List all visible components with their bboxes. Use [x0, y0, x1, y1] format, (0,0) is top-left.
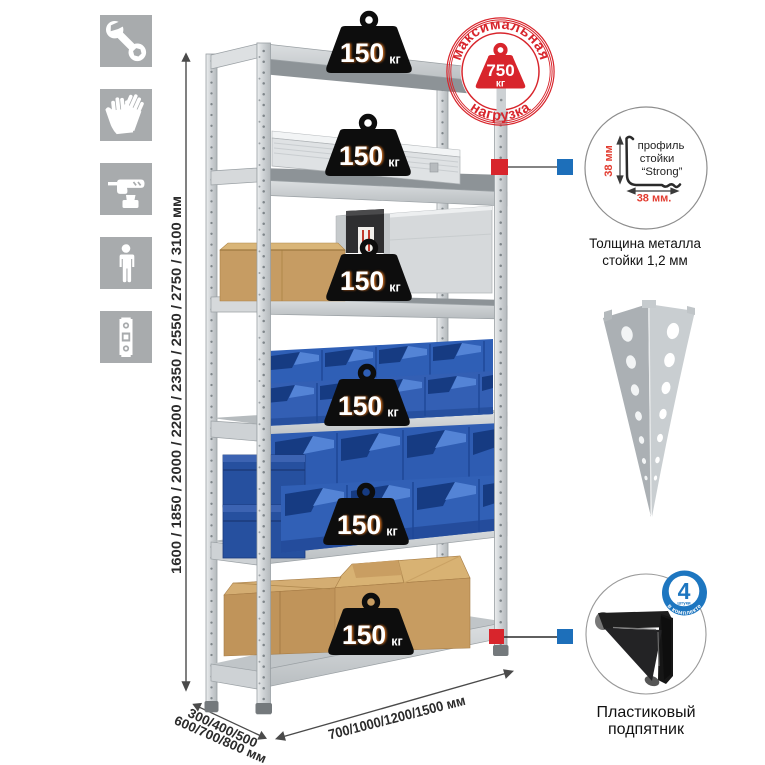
- svg-text:кг: кг: [386, 525, 397, 539]
- svg-text:Пластиковый: Пластиковый: [596, 704, 695, 721]
- svg-text:кг: кг: [389, 281, 400, 295]
- svg-text:750: 750: [486, 61, 514, 80]
- svg-text:150: 150: [338, 391, 382, 421]
- svg-text:кг: кг: [389, 53, 400, 67]
- svg-text:стойки: стойки: [640, 153, 675, 165]
- svg-text:150: 150: [339, 141, 383, 171]
- svg-text:38 мм.: 38 мм.: [637, 193, 672, 205]
- svg-text:профиль: профиль: [638, 140, 685, 152]
- svg-text:“Strong”: “Strong”: [642, 166, 683, 178]
- svg-text:кг: кг: [387, 406, 398, 420]
- svg-text:кг: кг: [388, 156, 399, 170]
- svg-text:Толщина металла: Толщина металла: [589, 236, 701, 251]
- svg-text:кг: кг: [496, 79, 505, 90]
- svg-text:1600 / 1850 / 2000 / 2200 / 23: 1600 / 1850 / 2000 / 2200 / 2350 / 2550 …: [168, 196, 184, 574]
- svg-text:стойки 1,2 мм: стойки 1,2 мм: [602, 253, 687, 268]
- svg-text:150: 150: [340, 38, 384, 68]
- svg-text:кг: кг: [391, 635, 402, 649]
- svg-text:150: 150: [337, 510, 381, 540]
- svg-text:150: 150: [342, 620, 386, 650]
- svg-text:подпятник: подпятник: [608, 721, 685, 738]
- svg-text:штуки: штуки: [677, 601, 691, 606]
- svg-text:150: 150: [340, 266, 384, 296]
- svg-text:38 мм: 38 мм: [603, 145, 615, 177]
